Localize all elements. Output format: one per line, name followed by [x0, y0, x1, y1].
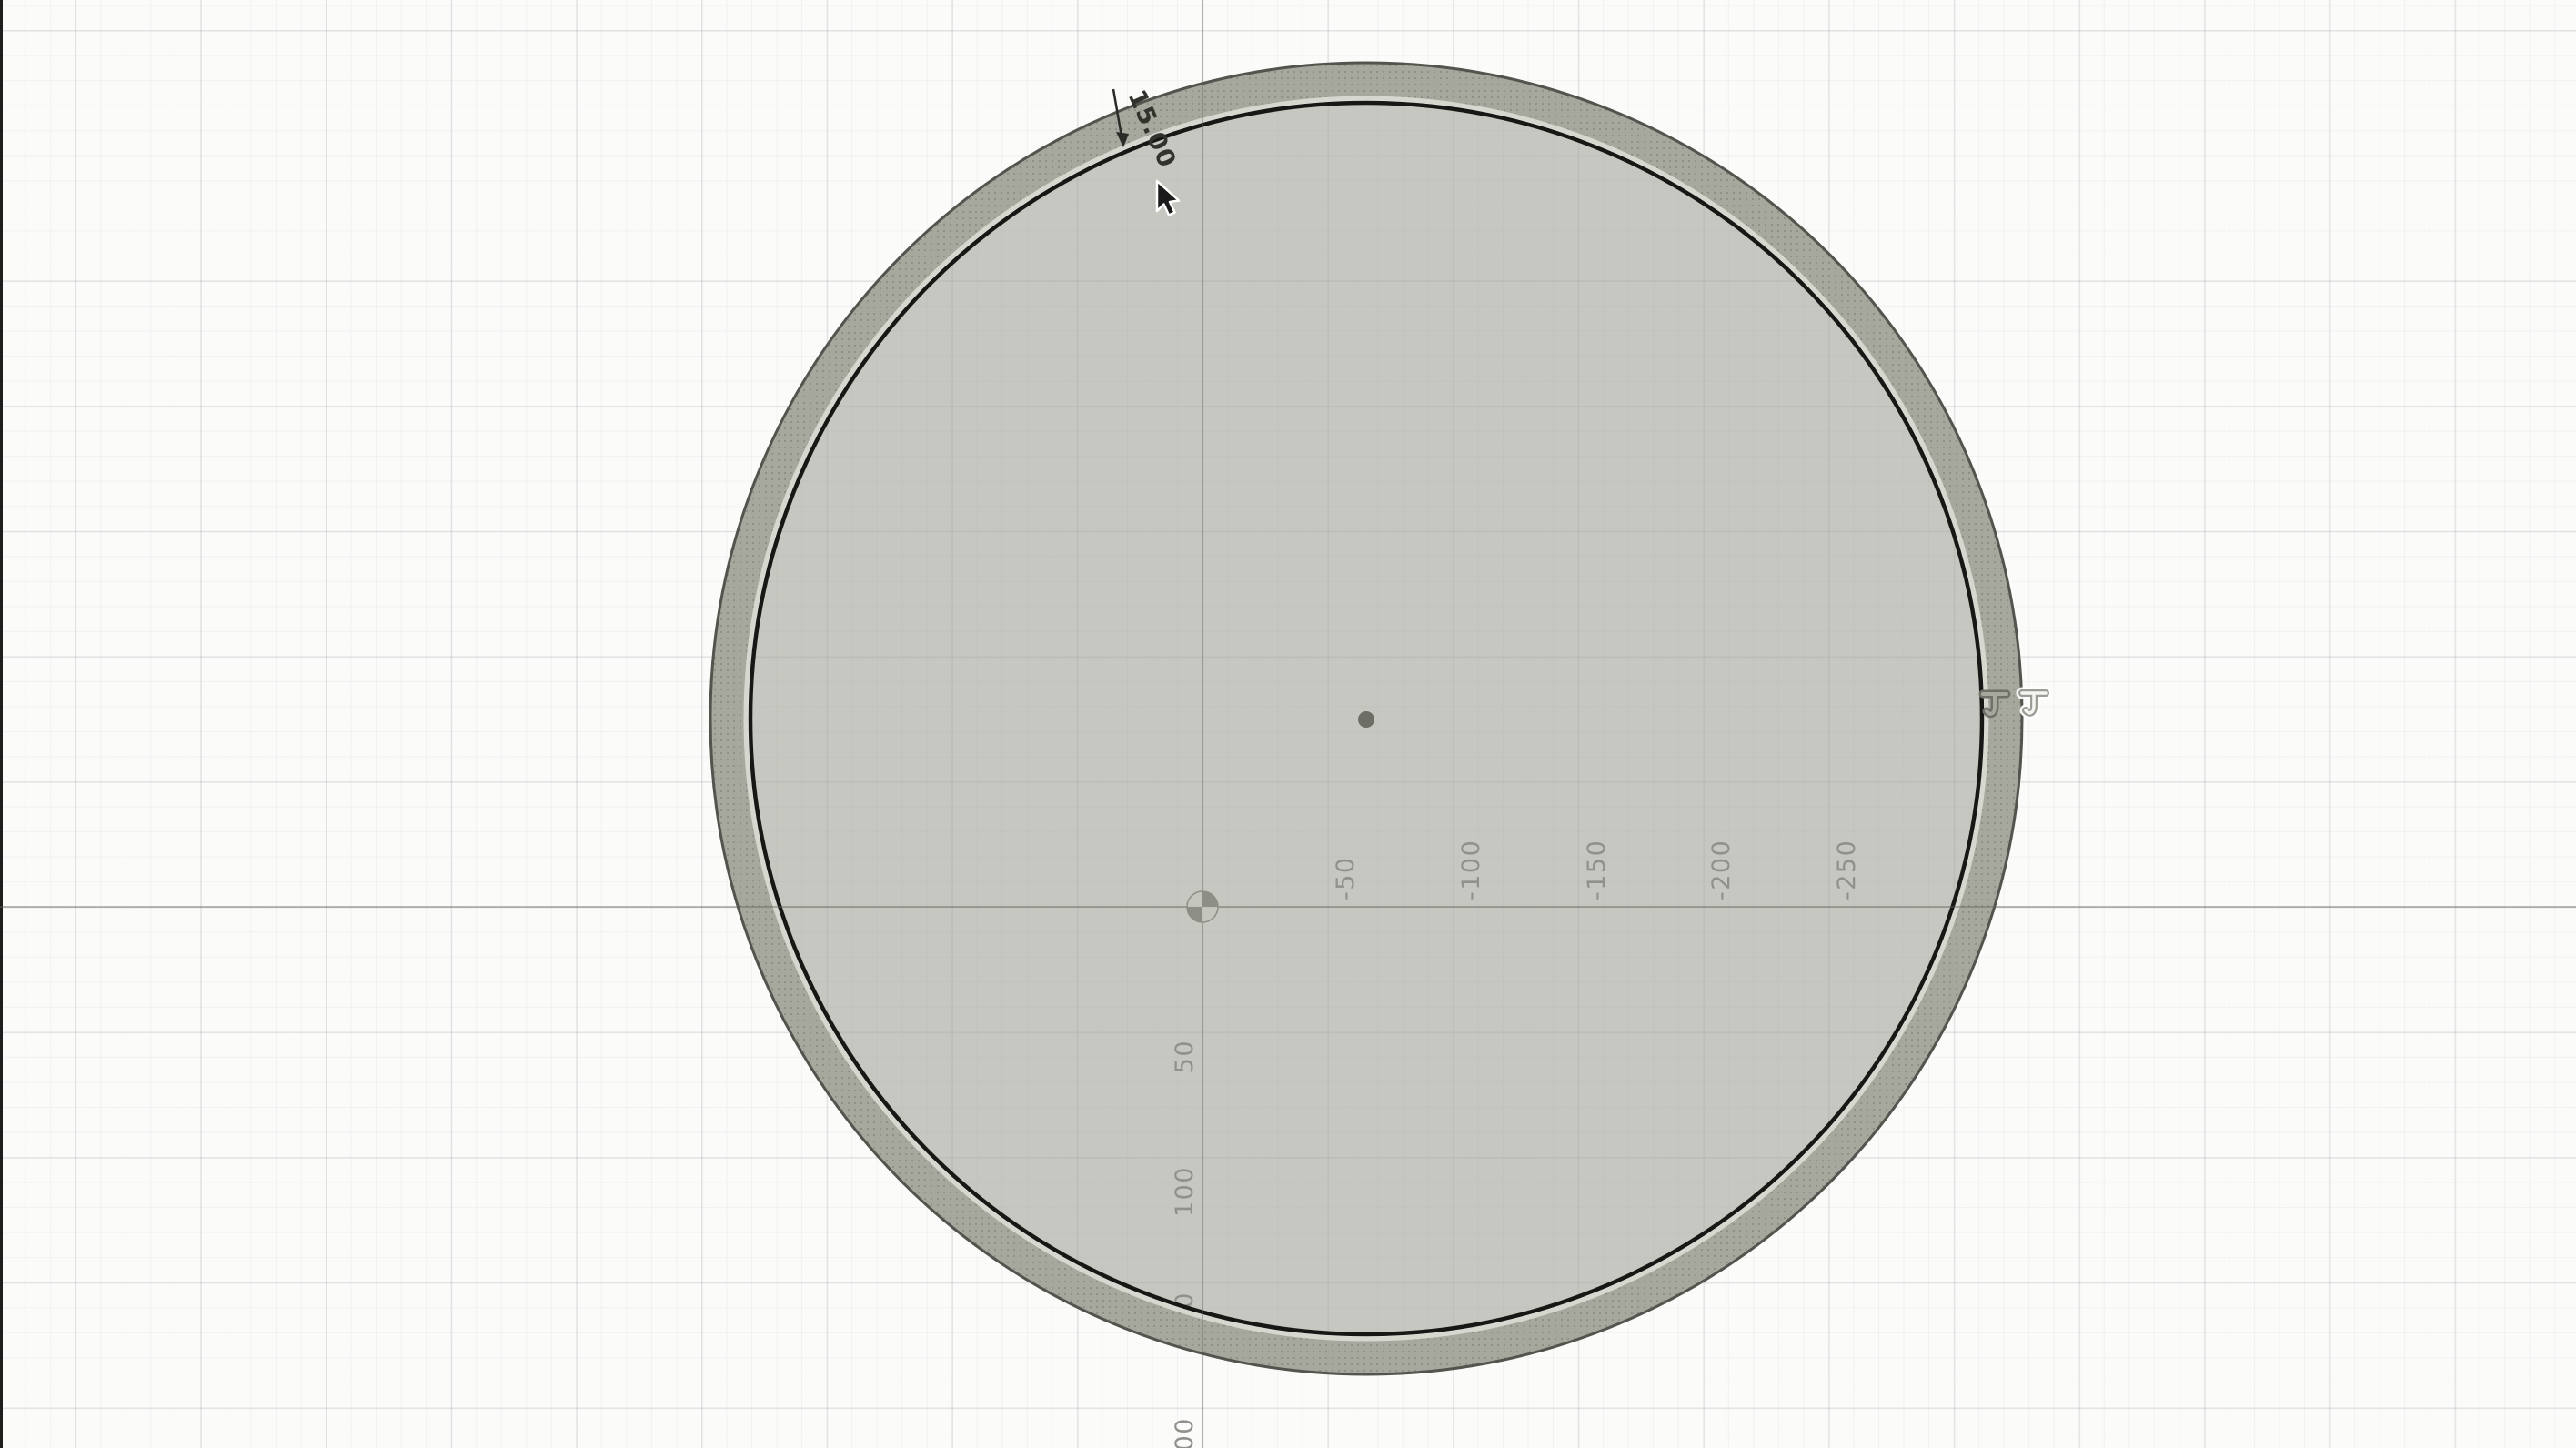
origin-marker[interactable] [1187, 891, 1218, 922]
sketch-geometry-layer: -50 -100 -150 -200 -250 50 100 150 200 [0, 0, 2576, 1448]
y-axis-tick-label: 50 [1171, 1040, 1199, 1073]
tangent-constraint-icon[interactable] [2022, 693, 2046, 713]
x-axis-tick-label: -250 [1833, 840, 1861, 900]
x-axis-tick-label: -50 [1332, 856, 1360, 900]
x-axis-tick-label: -100 [1457, 840, 1485, 900]
x-axis-tick-label: -150 [1583, 840, 1611, 900]
y-axis-tick-label: 200 [1171, 1417, 1199, 1448]
circle-center-point[interactable] [1358, 711, 1374, 728]
y-axis-tick-label: 100 [1171, 1166, 1199, 1217]
cad-viewport: { "viewport": { "type": "cad-sketch-canv… [0, 0, 2576, 1448]
x-axis-tick-label: -200 [1707, 840, 1736, 900]
